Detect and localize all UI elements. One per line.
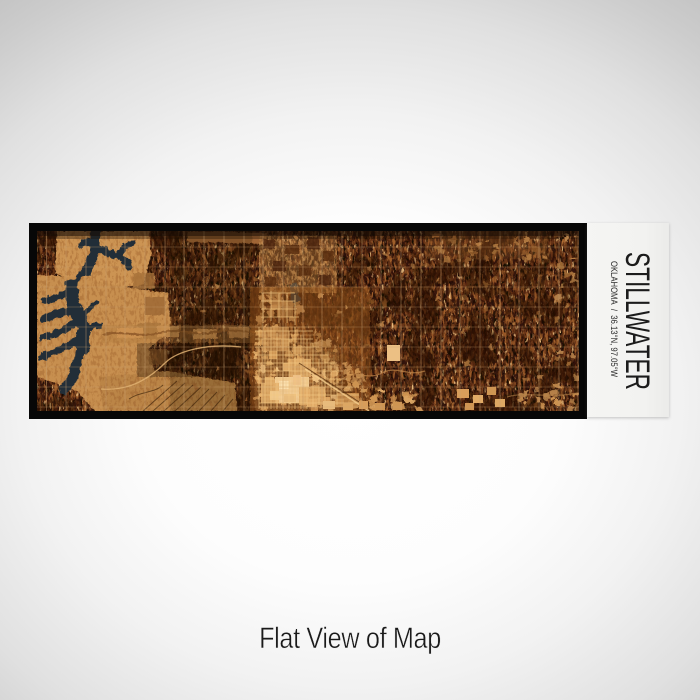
svg-text:OKLAHOMA / 36.13°N, 97.05°W: OKLAHOMA / 36.13°N, 97.05°W [608,261,619,378]
svg-text:STILLWATER: STILLWATER [618,252,656,390]
